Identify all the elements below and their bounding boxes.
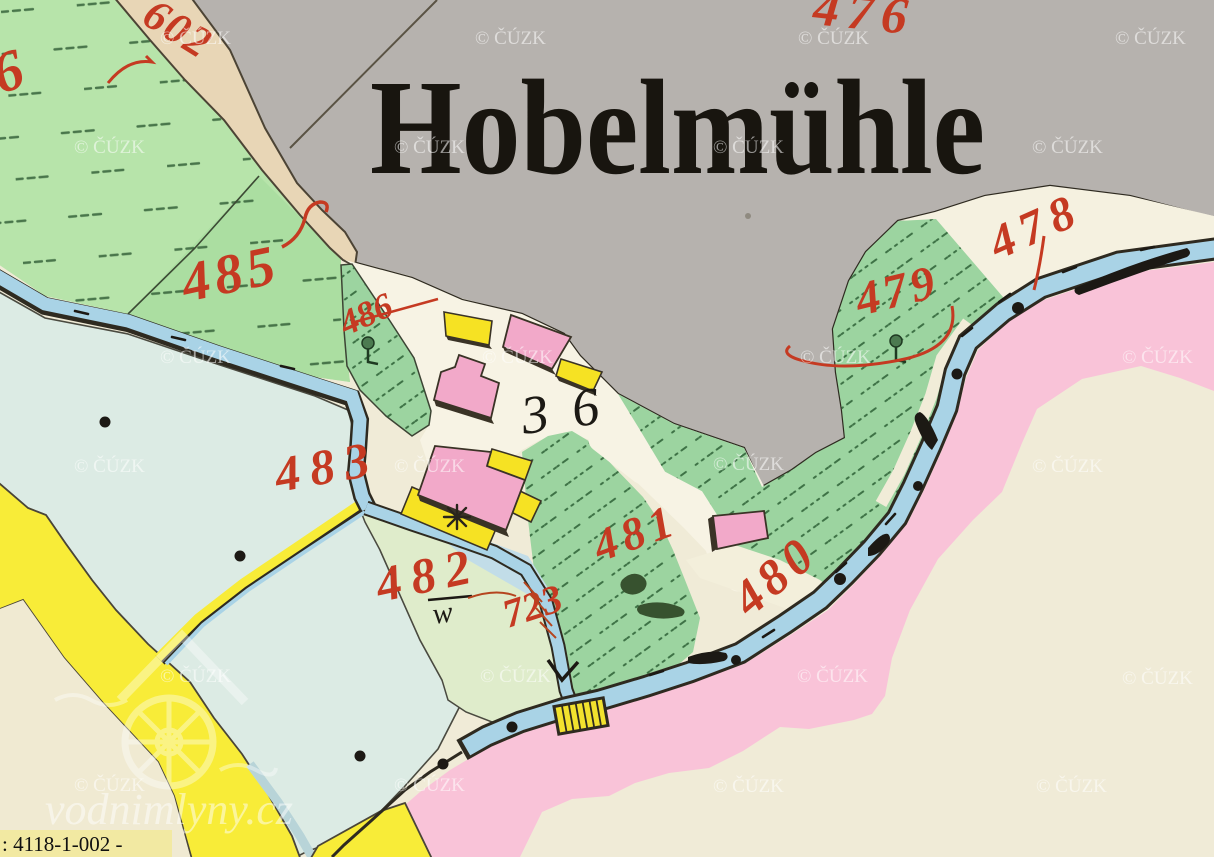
svg-text:© ČÚZK: © ČÚZK	[1122, 667, 1193, 689]
svg-text:Hobelmühle: Hobelmühle	[370, 53, 985, 203]
svg-text:© ČÚZK: © ČÚZK	[74, 774, 145, 796]
svg-text:© ČÚZK: © ČÚZK	[713, 136, 784, 158]
svg-text:© ČÚZK: © ČÚZK	[482, 346, 553, 368]
svg-text:© ČÚZK: © ČÚZK	[1032, 136, 1103, 158]
svg-text:© ČÚZK: © ČÚZK	[480, 665, 551, 687]
svg-text:© ČÚZK: © ČÚZK	[475, 27, 546, 49]
svg-text:© ČÚZK: © ČÚZK	[713, 453, 784, 475]
svg-text:© ČÚZK: © ČÚZK	[713, 775, 784, 797]
svg-text:© ČÚZK: © ČÚZK	[394, 455, 465, 477]
svg-text:© ČÚZK: © ČÚZK	[1122, 346, 1193, 368]
svg-text:© ČÚZK: © ČÚZK	[797, 665, 868, 687]
svg-text:© ČÚZK: © ČÚZK	[74, 455, 145, 477]
svg-text:: 4118-1-002 -: : 4118-1-002 -	[2, 832, 123, 856]
svg-text:© ČÚZK: © ČÚZK	[798, 27, 869, 49]
svg-text:© ČÚZK: © ČÚZK	[394, 136, 465, 158]
svg-text:© ČÚZK: © ČÚZK	[160, 27, 231, 49]
svg-text:© ČÚZK: © ČÚZK	[160, 665, 231, 687]
svg-text:© ČÚZK: © ČÚZK	[1115, 27, 1186, 49]
svg-text:© ČÚZK: © ČÚZK	[800, 346, 871, 368]
svg-text:© ČÚZK: © ČÚZK	[394, 774, 465, 796]
svg-text:© ČÚZK: © ČÚZK	[74, 136, 145, 158]
svg-text:© ČÚZK: © ČÚZK	[160, 346, 231, 368]
svg-text:© ČÚZK: © ČÚZK	[1032, 455, 1103, 477]
svg-text:© ČÚZK: © ČÚZK	[1036, 775, 1107, 797]
